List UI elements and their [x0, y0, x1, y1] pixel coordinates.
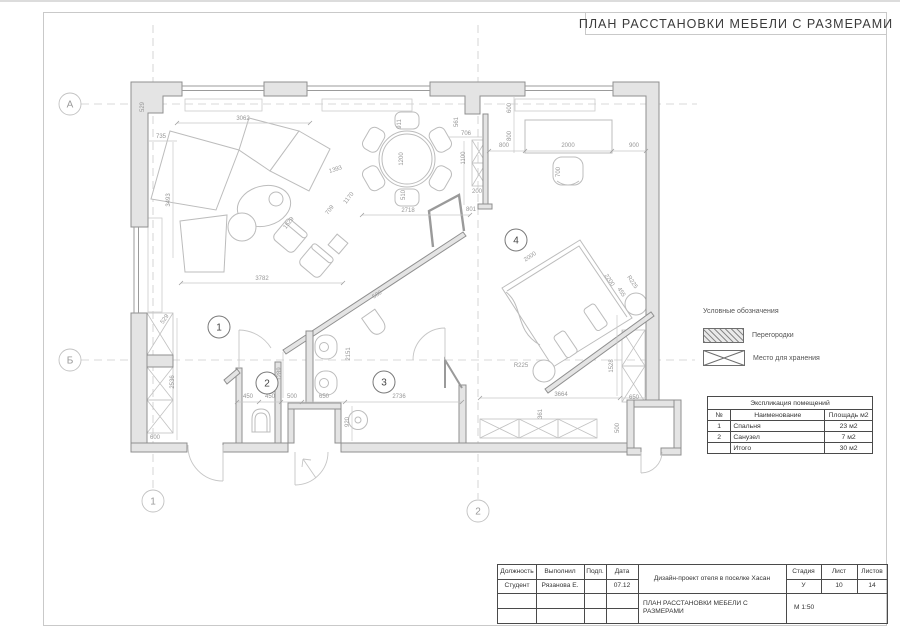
window: [182, 86, 264, 91]
dim-label: 3493: [166, 193, 172, 207]
dim-label: 200: [472, 189, 483, 195]
stamp-label: Дата: [606, 565, 638, 579]
dim-label: 900: [629, 143, 640, 149]
dim-label: 500: [287, 394, 298, 400]
door-arc: [641, 452, 662, 473]
legend-item: Место для хранения: [703, 350, 883, 366]
bath-wall: [459, 385, 466, 443]
dim-label: 500: [615, 422, 621, 433]
dim-label: 2718: [401, 208, 415, 214]
door-arc: [413, 328, 445, 360]
room-marker-4-label: 4: [513, 236, 519, 247]
nightstand: [533, 360, 555, 382]
stamp-label: Должность: [498, 565, 536, 579]
window: [307, 86, 430, 91]
vestibule-wall: [661, 448, 681, 455]
wall-bottom: [341, 443, 627, 452]
storage-box-icon: [480, 419, 519, 438]
legend-item: Перегородки: [703, 327, 883, 343]
vestibule-wall: [627, 448, 641, 455]
stamp-sheets-total: 14: [857, 579, 887, 593]
storage-box-icon: [147, 313, 173, 355]
title-block: Должность Выполнил Подп. Дата Студент Ря…: [497, 564, 888, 624]
stamp-label: Подп.: [584, 565, 606, 579]
vestibule-wall: [627, 400, 681, 407]
dim-label: 2000: [523, 251, 538, 264]
legend-item-label: Перегородки: [752, 332, 794, 339]
dim-label: 1393: [328, 165, 343, 175]
dim-label: 735: [156, 134, 167, 140]
stamp-label: Листов: [857, 565, 887, 579]
window: [525, 86, 613, 91]
stamp-sheet-title: ПЛАН РАССТАНОВКИ МЕБЕЛИ С РАЗМЕРАМИ: [643, 595, 759, 621]
side-table: [328, 234, 348, 254]
explication-title: Экспликация помещений: [708, 397, 873, 410]
stamp-sheet-number: 10: [821, 579, 857, 593]
door-arc: [239, 330, 271, 368]
dim-label: 800: [499, 143, 510, 149]
legend-item-label: Место для хранения: [753, 355, 820, 362]
sink-icon: [315, 371, 337, 395]
wc-wall: [236, 368, 242, 443]
partition-thin: [483, 114, 488, 204]
dim-label: 800: [507, 130, 513, 141]
dim-label: 600: [507, 102, 513, 113]
room-marker-2-label: 2: [264, 379, 270, 390]
dim-label: 2151: [346, 347, 352, 361]
dim-label: 911: [397, 119, 403, 129]
dim-label: 650: [629, 395, 640, 401]
partition-foot: [478, 204, 492, 209]
axis-marker-А-label: А: [67, 100, 74, 111]
stamp-position: Студент: [498, 579, 536, 593]
dining-table: [379, 131, 435, 187]
explication-table: Экспликация помещений № Наименование Пло…: [707, 396, 873, 454]
dim-label: R225: [625, 275, 638, 291]
stamp-label: Лист: [821, 565, 857, 579]
vestibule-wall: [627, 400, 634, 455]
dim-label: 1289: [277, 367, 283, 381]
wall-bottom: [131, 443, 187, 452]
dim-label: 2736: [392, 394, 406, 400]
dim-label: 3782: [255, 276, 269, 282]
sofa: [151, 118, 330, 272]
stamp-label: Выполнил: [536, 565, 584, 579]
dim-label: 561: [454, 116, 460, 127]
sink-icon: [315, 335, 337, 359]
table-row: Итого 30 м2: [708, 443, 873, 454]
col-header: Наименование: [731, 410, 825, 421]
lobby-wall: [288, 403, 341, 409]
dim-label: 650: [319, 394, 330, 400]
dining-chair: [395, 189, 419, 206]
table-row: 2 Санузел 7 м2: [708, 432, 873, 443]
dim-label: 450: [243, 394, 254, 400]
storage-box-icon: [558, 419, 597, 438]
nightstand: [625, 293, 647, 315]
wall-left-bottom: [131, 313, 147, 452]
dim-label: 1170: [343, 191, 356, 205]
room-marker-1-label: 1: [216, 323, 222, 334]
dim-label: 510: [401, 189, 407, 200]
col-header: №: [708, 410, 731, 421]
bed: [502, 240, 632, 367]
dim-label: 600: [150, 435, 161, 441]
entrance-arrow: [302, 459, 316, 478]
bath-divider: [306, 331, 313, 403]
axis-marker-1-label: 1: [150, 497, 156, 508]
dim-label: 1100: [461, 151, 467, 165]
table-row: 1 Спальня 23 м2: [708, 421, 873, 432]
dim-label: 361: [538, 408, 544, 419]
toilet-icon: [252, 409, 270, 432]
dim-label: 3664: [554, 392, 568, 398]
wall-bottom: [223, 443, 288, 452]
stamp-label: Стадия: [786, 565, 821, 579]
door-arc: [295, 452, 328, 485]
storage-swatch: [703, 350, 745, 366]
stamp-author: Рязанова Е.: [536, 579, 584, 593]
col-header: Площадь м2: [825, 410, 873, 421]
dim-label: 2000: [561, 143, 575, 149]
dim-label: R225: [514, 363, 529, 369]
wall-top-right: [613, 82, 659, 402]
dim-label: 706: [461, 131, 472, 137]
axis-marker-2-label: 2: [475, 507, 481, 518]
door-arc: [188, 445, 223, 481]
stamp-stage: У: [786, 579, 821, 593]
dim-label: 709: [325, 204, 336, 216]
axis-marker-Б-label: Б: [67, 356, 74, 367]
dim-label: 1528: [609, 359, 615, 373]
armchair: [298, 243, 335, 280]
vestibule-wall: [674, 400, 681, 455]
dim-label: 3062: [236, 116, 250, 122]
storage-box-icon: [519, 419, 558, 438]
dim-label: 920: [345, 416, 351, 427]
dim-label: 700: [556, 166, 562, 177]
dim-label: 2536: [170, 375, 176, 389]
dim-label: 801: [466, 207, 477, 213]
stamp-date: 07.12: [606, 579, 638, 593]
storage-box-icon: [147, 400, 173, 433]
doors: [188, 328, 662, 485]
window: [134, 227, 139, 313]
hatched-partition-pier: [264, 82, 307, 96]
drawing-sheet: ПЛАН РАССТАНОВКИ МЕБЕЛИ С РАЗМЕРАМИ: [0, 0, 900, 635]
legend: Условные обозначения Перегородки Место д…: [703, 308, 883, 373]
toilet-icon: [362, 309, 388, 337]
dim-label: 529: [140, 101, 146, 112]
room-marker-3-label: 3: [381, 378, 387, 389]
stamp-scale: М 1:50: [794, 593, 844, 623]
room-markers: 1234: [208, 229, 527, 394]
dim-label: 450: [265, 394, 276, 400]
dim-label: 1200: [399, 152, 405, 166]
legend-heading: Условные обозначения: [703, 308, 883, 315]
wall-pier-b: [147, 355, 173, 367]
stamp-project: Дизайн-проект отеля в поселке Хасан: [640, 565, 784, 593]
zigzag-partition-small: [445, 360, 462, 388]
partitions-swatch: [703, 328, 744, 343]
washer-icon: [349, 411, 368, 430]
